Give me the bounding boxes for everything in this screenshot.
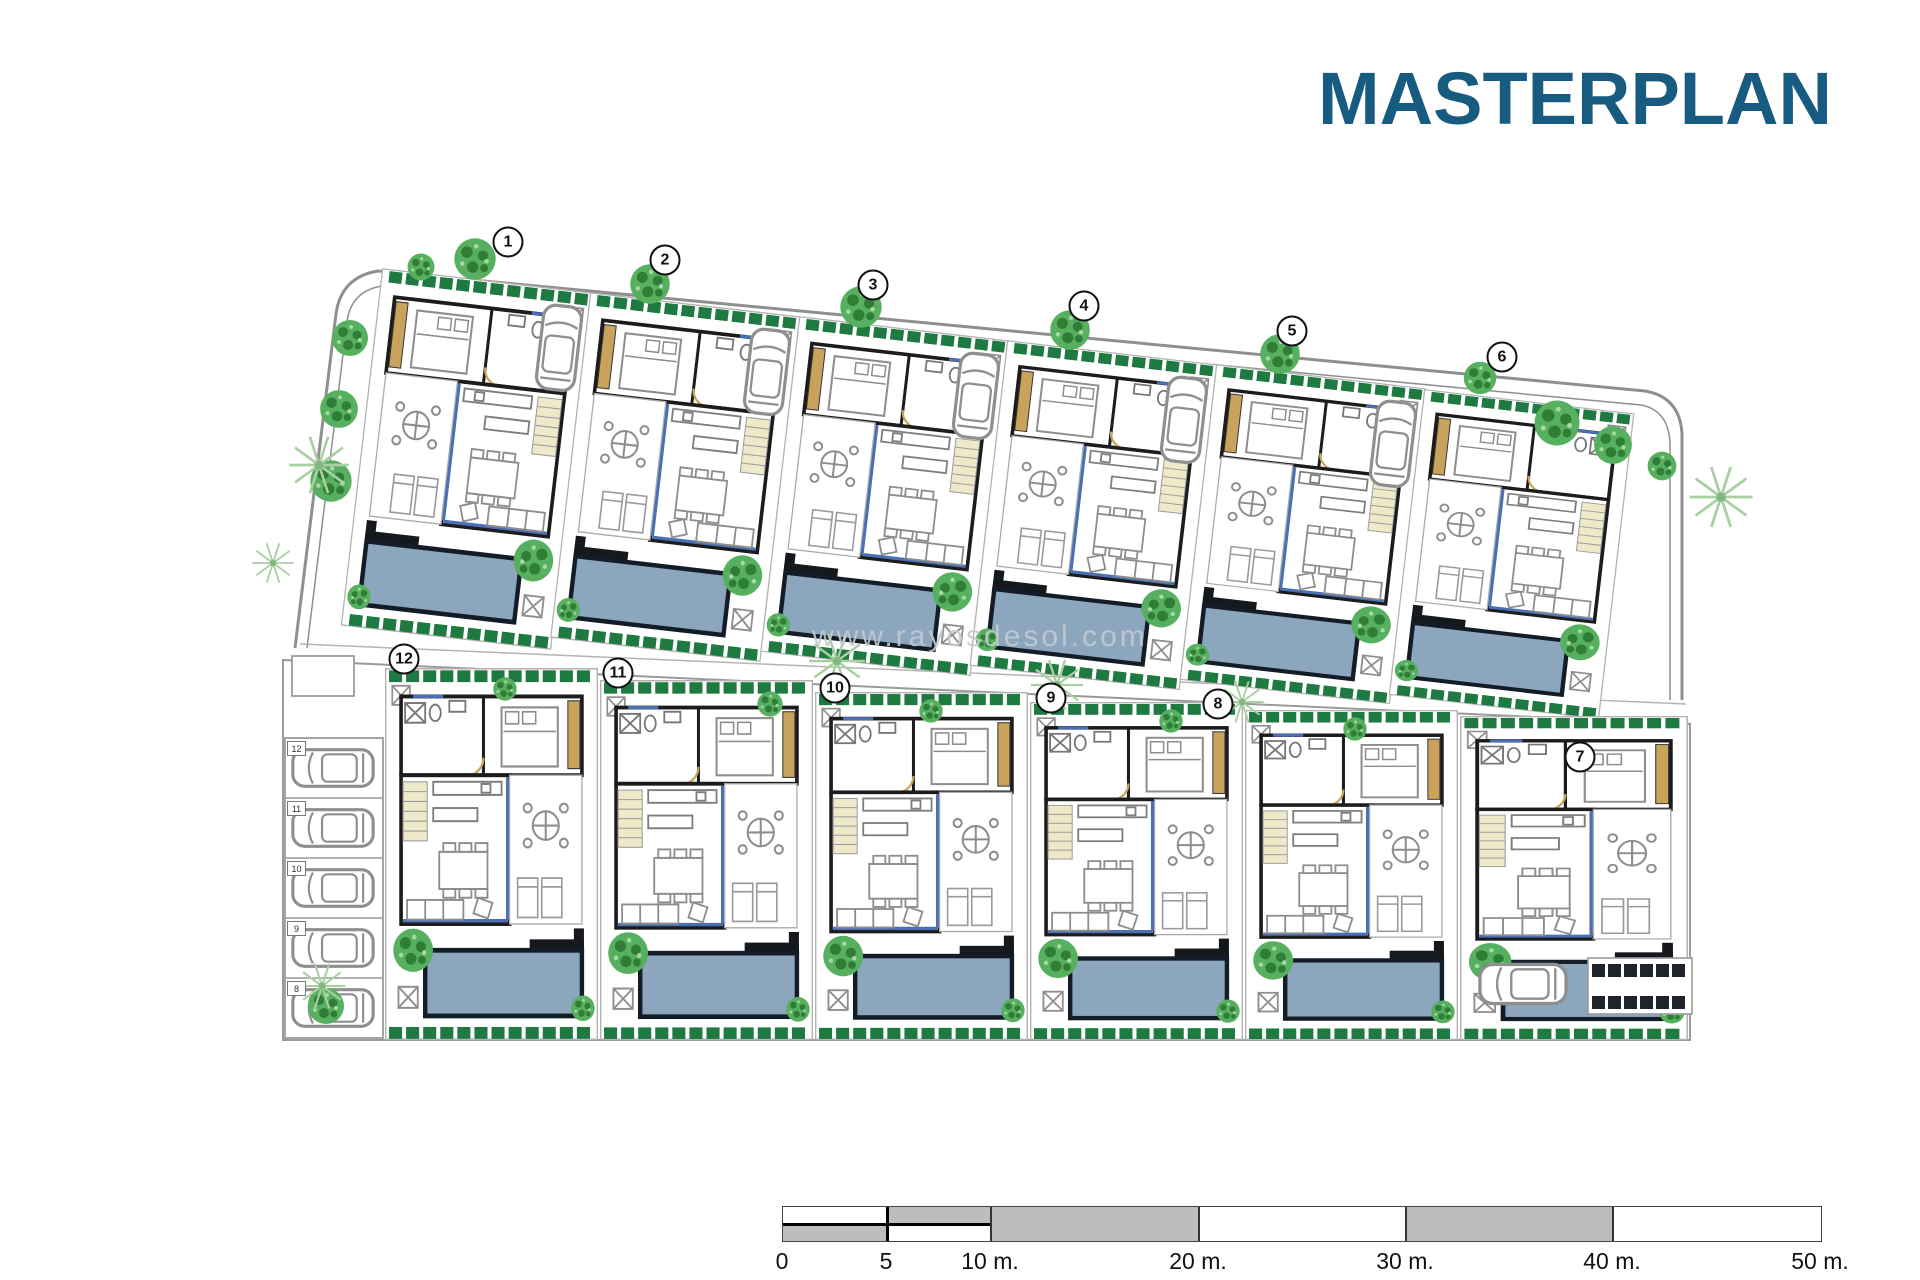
scale-tick	[1198, 1207, 1200, 1241]
plot-number-2: 2	[650, 245, 681, 276]
watermark: www.rayosdesol.com	[812, 620, 1148, 654]
tree-icon	[1343, 717, 1366, 740]
villa-plot-10	[816, 693, 1028, 1040]
tree-icon	[408, 254, 435, 281]
scale-tick	[1405, 1207, 1407, 1241]
tree-icon	[1159, 709, 1182, 732]
plot-number-7: 7	[1565, 742, 1596, 773]
car-icon	[535, 304, 583, 392]
tree-icon	[320, 390, 358, 428]
scale-segment	[887, 1224, 991, 1241]
tree-icon	[919, 699, 942, 722]
tree-icon	[1648, 452, 1677, 481]
plot-number-9: 9	[1036, 683, 1067, 714]
scale-segment	[991, 1207, 1199, 1241]
scale-label-40: 40 m.	[1583, 1248, 1641, 1275]
villa-plot-1	[341, 269, 591, 649]
scale-label-5: 5	[880, 1248, 893, 1275]
utility-box	[292, 656, 354, 696]
car-icon	[1369, 400, 1417, 488]
villa-plot-9	[1031, 703, 1243, 1040]
tree-icon	[493, 677, 516, 700]
masterplan-page: MASTERPLAN www.rayosdesol.com 1 2 3 4 5 …	[0, 0, 1920, 1280]
car-icon	[1160, 376, 1208, 464]
tree-icon	[332, 320, 368, 356]
palm-icon	[1690, 467, 1753, 527]
scale-tick	[886, 1207, 889, 1241]
scale-label-0: 0	[776, 1248, 789, 1275]
scale-label-20: 20 m.	[1169, 1248, 1227, 1275]
scale-segment	[783, 1207, 887, 1224]
palm-icon	[252, 543, 293, 582]
plot-number-10: 10	[820, 673, 851, 704]
car-icon	[743, 328, 791, 416]
plot-number-8: 8	[1203, 689, 1234, 720]
car-icon	[1480, 964, 1566, 1003]
tree-icon	[1594, 426, 1632, 464]
scale-segment	[783, 1224, 887, 1241]
villa-plot-5	[1180, 365, 1426, 704]
tree-icon	[454, 238, 495, 279]
carport-bay-label: 9	[287, 921, 306, 936]
villa-plot-11	[601, 681, 813, 1040]
scale-tick	[1612, 1207, 1614, 1241]
carport-bay-label: 12	[287, 741, 306, 756]
villa-plot-8	[1246, 711, 1458, 1040]
scale-segment	[1199, 1207, 1406, 1241]
carport-bay-label: 8	[287, 981, 306, 996]
scale-segment	[887, 1207, 991, 1224]
scale-tick	[990, 1207, 992, 1241]
scale-segment	[1613, 1207, 1821, 1241]
plot-number-5: 5	[1277, 316, 1308, 347]
plot-number-1: 1	[493, 227, 524, 258]
page-title: MASTERPLAN	[1318, 56, 1832, 141]
carport-bay-label: 10	[287, 861, 306, 876]
tree-icon	[757, 691, 782, 716]
plot-number-3: 3	[858, 270, 889, 301]
scale-label-50: 50 m.	[1791, 1248, 1849, 1275]
tree-icon	[1535, 401, 1580, 446]
villa-plot-2	[551, 293, 800, 661]
plot-number-6: 6	[1487, 342, 1518, 373]
scale-label-10: 10 m.	[961, 1248, 1019, 1275]
scale-segment	[1406, 1207, 1613, 1241]
carport-bay-label: 11	[287, 801, 306, 816]
scale-label-30: 30 m.	[1376, 1248, 1434, 1275]
car-icon	[952, 352, 1000, 440]
scale-bar-track	[782, 1206, 1822, 1242]
plot-number-4: 4	[1069, 291, 1100, 322]
villa-plot-12	[386, 669, 598, 1039]
plot-number-12: 12	[389, 644, 420, 675]
plot-number-11: 11	[603, 658, 634, 689]
